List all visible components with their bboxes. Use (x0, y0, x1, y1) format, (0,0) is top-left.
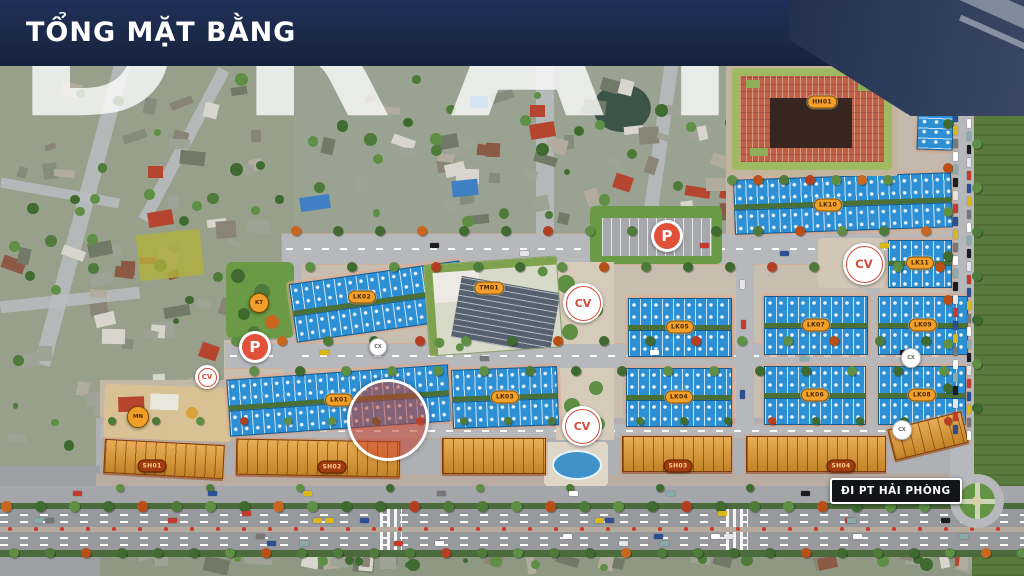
street-tree (657, 548, 667, 558)
street-tree (375, 226, 385, 236)
street-tree (152, 417, 160, 425)
street-tree (553, 336, 563, 346)
car (967, 314, 972, 323)
tree (207, 193, 218, 204)
street-tree (972, 271, 982, 281)
street-tree (460, 417, 468, 425)
tree (531, 560, 540, 569)
car (953, 178, 958, 187)
car (724, 534, 733, 539)
car (168, 518, 177, 523)
block-label-LK03: LK03 (491, 391, 519, 404)
car (967, 262, 972, 271)
roof (246, 219, 270, 234)
street-tree (921, 226, 931, 236)
flower-bed (736, 527, 740, 531)
car (605, 518, 614, 523)
car (660, 541, 669, 546)
car (569, 491, 578, 496)
direction-sign: ĐI PT HẢI PHÒNG (830, 478, 962, 504)
car (967, 171, 972, 180)
street-tree (617, 366, 627, 376)
street-tree (108, 417, 116, 425)
street-tree (945, 548, 955, 558)
flower-bed (684, 527, 688, 531)
street-tree (548, 417, 556, 425)
street-tree (765, 548, 775, 558)
car (967, 418, 972, 427)
flower-bed (944, 527, 948, 531)
street-tree (328, 417, 336, 425)
flower-bed (138, 527, 142, 531)
tree (51, 419, 58, 426)
flower-bed (996, 527, 1000, 531)
street-tree (307, 501, 318, 512)
car (953, 334, 958, 343)
street-tree (972, 315, 982, 325)
block-label-TM01: TM01 (474, 282, 504, 295)
car (953, 399, 958, 408)
masterplan-slide: DRAFT TỔNG MẶT BẰNG ĐI PT HẢI PHÒNG LK01… (0, 0, 1024, 576)
street-tree (847, 366, 857, 376)
tree (355, 557, 364, 566)
street-tree (557, 262, 567, 272)
street-tree (441, 548, 451, 558)
marker-green: CX (901, 348, 921, 368)
car (45, 518, 54, 523)
street-tree (415, 336, 425, 346)
street-tree (621, 548, 631, 558)
street-tree (943, 163, 953, 173)
car (73, 491, 82, 496)
car (967, 379, 972, 388)
tree (9, 241, 20, 252)
flower-bed (372, 527, 376, 531)
tree (599, 194, 611, 206)
street-tree (909, 548, 919, 558)
car (208, 491, 217, 496)
street-tree (433, 366, 443, 376)
flower-bed (762, 527, 766, 531)
flower-bed (580, 527, 584, 531)
flower-bed (294, 527, 298, 531)
car (967, 210, 972, 219)
car (953, 295, 958, 304)
car (300, 541, 309, 546)
street-tree (239, 501, 250, 512)
tree (463, 558, 468, 563)
street-tree (746, 484, 754, 492)
street-tree (69, 501, 80, 512)
page-title: TỔNG MẶT BẰNG (26, 0, 296, 66)
block-label-LK10: LK10 (814, 199, 842, 212)
car (563, 534, 572, 539)
shophouse-row (442, 438, 546, 474)
bush (537, 266, 548, 277)
flower-bed (632, 527, 636, 531)
tree (90, 194, 100, 204)
block-label-LK11: LK11 (906, 257, 934, 270)
highlight-circle (347, 379, 429, 461)
street-tree (725, 262, 735, 272)
car (34, 518, 43, 523)
street-tree (656, 484, 664, 492)
block-LK10 (733, 172, 953, 234)
car (967, 405, 972, 414)
townhouse-row (628, 330, 732, 358)
commercial-center-TM01 (423, 255, 563, 356)
tree (405, 562, 412, 569)
car (953, 256, 958, 265)
street-tree (525, 366, 535, 376)
street-tree (417, 226, 427, 236)
car (800, 356, 809, 361)
flower-bed (424, 527, 428, 531)
street-tree (477, 548, 487, 558)
flower-bed (34, 527, 38, 531)
street-tree (515, 262, 525, 272)
street-tree (323, 336, 333, 346)
roof (216, 220, 237, 238)
street-tree (795, 226, 805, 236)
tree (265, 315, 279, 329)
car (959, 534, 968, 539)
car (941, 518, 950, 523)
flower-bed (346, 527, 350, 531)
street-tree (801, 548, 811, 558)
block-label-LK09: LK09 (909, 319, 937, 332)
flower-bed (398, 527, 402, 531)
street-tree (189, 548, 199, 558)
street-tree (636, 417, 644, 425)
street-tree (171, 501, 182, 512)
street-tree (153, 548, 163, 558)
street-tree (893, 262, 903, 272)
street-tree (779, 175, 789, 185)
street-tree (981, 548, 991, 558)
car (953, 165, 958, 174)
flower-bed (554, 527, 558, 531)
flower-bed (320, 527, 324, 531)
tree (499, 208, 510, 219)
flower-bed (788, 527, 792, 531)
street-tree (767, 262, 777, 272)
car (967, 392, 972, 401)
street-tree (295, 366, 305, 376)
block-label-SH02: SH02 (318, 461, 347, 474)
roof (120, 261, 134, 276)
street-tree (261, 548, 271, 558)
street-tree (873, 548, 883, 558)
marker-park: CV (562, 406, 602, 446)
car (325, 518, 334, 523)
park-ring: CV (565, 409, 600, 444)
plaza-garden (589, 381, 603, 395)
park-ring: CV (846, 246, 883, 283)
street-tree (116, 484, 124, 492)
street-tree (543, 226, 553, 236)
car (953, 204, 958, 213)
street-tree (473, 262, 483, 272)
street-tree (943, 383, 953, 393)
roof (958, 555, 969, 570)
street-tree (504, 417, 512, 425)
car (953, 282, 958, 291)
car (780, 251, 789, 256)
street-tree (683, 262, 693, 272)
car (711, 534, 720, 539)
car (256, 534, 265, 539)
street-tree (341, 366, 351, 376)
street-tree (137, 501, 148, 512)
flower-bed (268, 527, 272, 531)
car (953, 386, 958, 395)
car (360, 518, 369, 523)
car (967, 327, 972, 336)
street-tree (613, 501, 624, 512)
roundabout-center (972, 496, 982, 506)
marker-park: CV (563, 283, 603, 323)
street-tree (944, 417, 952, 425)
street-tree (829, 336, 839, 346)
street-tree (729, 548, 739, 558)
tree (673, 181, 683, 191)
tree (600, 564, 607, 571)
car (303, 491, 312, 496)
street-tree (753, 175, 763, 185)
car (394, 541, 403, 546)
flower-bed (164, 527, 168, 531)
marker-parking: P (651, 220, 683, 252)
flower-bed (502, 527, 506, 531)
blue-shed-roof (451, 179, 479, 198)
car (967, 301, 972, 310)
street-tree (627, 226, 637, 236)
field-patch (136, 229, 204, 281)
flower-bed (606, 527, 610, 531)
tree (70, 195, 80, 205)
street-tree (387, 366, 397, 376)
street-tree (831, 175, 841, 185)
block-label-SH03: SH03 (664, 460, 693, 473)
street-tree (501, 226, 511, 236)
street-tree (599, 262, 609, 272)
car (700, 243, 709, 248)
bush (434, 337, 445, 348)
street-tree (431, 262, 441, 272)
roof (488, 173, 499, 183)
street-tree (805, 175, 815, 185)
car (953, 217, 958, 226)
roof (101, 329, 124, 345)
flower-bed (840, 527, 844, 531)
flower-bed (866, 527, 870, 531)
zebra-crossing (380, 509, 402, 527)
flower-bed (242, 527, 246, 531)
car (741, 320, 746, 329)
street-tree (240, 417, 248, 425)
car (880, 243, 889, 248)
tree (98, 163, 108, 173)
street-tree (103, 501, 114, 512)
tree (238, 308, 250, 320)
street-tree (579, 501, 590, 512)
car (953, 347, 958, 356)
street-tree (511, 501, 522, 512)
street-tree (409, 501, 420, 512)
marker-technical: KT (249, 293, 269, 313)
tree (564, 169, 570, 175)
car (967, 275, 972, 284)
street-tree (972, 227, 982, 237)
street-tree (749, 501, 760, 512)
street-tree (857, 175, 867, 185)
street-tree (1017, 548, 1024, 558)
shophouse-row-SH04 (746, 436, 886, 472)
street-tree (347, 262, 357, 272)
street-tree (809, 262, 819, 272)
roof (443, 197, 460, 213)
car (953, 360, 958, 369)
street-tree (645, 336, 655, 346)
car (953, 191, 958, 200)
tree (275, 195, 283, 203)
street-tree (333, 548, 343, 558)
street-tree (196, 417, 204, 425)
street-tree (875, 336, 885, 346)
street-tree (921, 336, 931, 346)
tree (13, 355, 24, 366)
car (967, 197, 972, 206)
kindergarten-roof (150, 393, 179, 410)
block-label-LK07: LK07 (802, 319, 830, 332)
marker-green: CX (892, 420, 912, 440)
park-ring: CV (198, 368, 217, 387)
car (740, 280, 745, 289)
street-tree (459, 226, 469, 236)
street-tree (571, 366, 581, 376)
street-tree (783, 336, 793, 346)
shophouse-row-SH01 (103, 439, 225, 479)
car (740, 390, 745, 399)
block-label-LK08: LK08 (908, 389, 936, 402)
lane-dashes (0, 521, 1024, 523)
block-label-LK05: LK05 (666, 321, 694, 334)
street-tree (768, 417, 776, 425)
car (967, 288, 972, 297)
car (666, 491, 675, 496)
car (430, 243, 439, 248)
street-tree (205, 501, 216, 512)
marker-parking: P (239, 331, 271, 363)
street-tree (737, 336, 747, 346)
marker-kindergarten: MN (127, 406, 149, 428)
street-tree (943, 251, 953, 261)
tree (27, 203, 39, 215)
marker-park: CV (843, 243, 885, 285)
tree (373, 209, 380, 216)
flower-bed (892, 527, 896, 531)
tree (920, 558, 933, 571)
car (953, 425, 958, 434)
zebra-crossing (726, 509, 748, 527)
car (953, 308, 958, 317)
street-tree (284, 417, 292, 425)
car (953, 243, 958, 252)
street-tree (817, 501, 828, 512)
car (267, 541, 276, 546)
flower-bed (216, 527, 220, 531)
park-ring: CV (566, 286, 601, 321)
flower-bed (476, 527, 480, 531)
street-tree (972, 403, 982, 413)
street-tree (35, 501, 46, 512)
street-tree (333, 226, 343, 236)
tree (88, 263, 99, 274)
street-tree (727, 175, 737, 185)
street-tree (585, 226, 595, 236)
street-tree (893, 366, 903, 376)
car (853, 534, 862, 539)
street-tree (837, 548, 847, 558)
street-tree (943, 295, 953, 305)
street-tree (599, 336, 609, 346)
street-tree (943, 207, 953, 217)
street-tree (297, 548, 307, 558)
roof (148, 166, 163, 178)
street-tree (1, 501, 12, 512)
street-tree (277, 336, 287, 346)
kindergarten-ground (103, 384, 233, 442)
street-tree (753, 226, 763, 236)
car (967, 184, 972, 193)
street-tree (225, 548, 235, 558)
street-tree (479, 366, 489, 376)
street-tree (9, 548, 19, 558)
car (242, 511, 251, 516)
street-tree (45, 548, 55, 558)
flower-bed (528, 527, 532, 531)
street-tree (117, 548, 127, 558)
street-tree (812, 417, 820, 425)
car (953, 373, 958, 382)
street-tree (691, 336, 701, 346)
street-tree (549, 548, 559, 558)
roof (354, 176, 368, 191)
flower-bed (450, 527, 454, 531)
street-tree (663, 366, 673, 376)
street-tree (305, 262, 315, 272)
street-tree (513, 548, 523, 558)
townhouse-row (764, 328, 868, 356)
roof (90, 289, 108, 299)
street-tree (801, 366, 811, 376)
roof (38, 346, 52, 361)
street-tree (389, 262, 399, 272)
car (953, 269, 958, 278)
street-tree (641, 262, 651, 272)
street-tree (972, 183, 982, 193)
marker-green: CX (369, 338, 387, 356)
car (619, 541, 628, 546)
carriageway (0, 509, 1024, 527)
street-tree (461, 336, 471, 346)
block-label-LK06: LK06 (801, 389, 829, 402)
car (967, 236, 972, 245)
car (953, 321, 958, 330)
street-tree (856, 417, 864, 425)
street-tree (972, 359, 982, 369)
